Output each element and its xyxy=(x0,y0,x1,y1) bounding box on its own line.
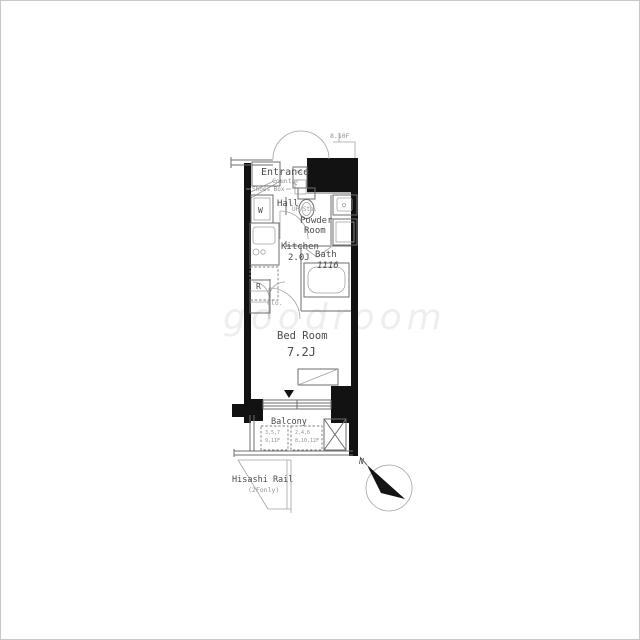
up-storage-label: UP/Sto. xyxy=(292,206,317,213)
kitchen-label: Kitchen xyxy=(281,242,319,252)
hisashi-sub-label: (2Fonly) xyxy=(248,486,279,494)
closet-door-arc xyxy=(269,282,285,298)
compass-arrow-icon xyxy=(367,465,405,499)
compass: N xyxy=(358,457,412,511)
floor-note-label: 8.10F xyxy=(330,132,350,140)
counter-label: Counter xyxy=(272,177,299,185)
window-note-right-1: 2,4,6 xyxy=(295,430,310,436)
entrance-door-arc xyxy=(273,131,329,159)
shoes-box-label: Shoes Box xyxy=(252,186,285,193)
sink-icon xyxy=(253,227,275,244)
compass-north-label: N xyxy=(358,457,364,466)
ps-label: PS xyxy=(295,170,303,177)
powder-room-label-2: Room xyxy=(304,226,326,236)
hisashi-rail-label: Hisashi Rail xyxy=(232,475,293,485)
burner-icon xyxy=(253,249,259,255)
kitchen-size-label: 2.0J xyxy=(288,253,310,263)
balcony-label: Balcony xyxy=(271,417,307,427)
washer-label: W xyxy=(258,206,263,215)
fridge-label: R xyxy=(256,282,261,291)
bath-size-label: 1116 xyxy=(317,261,339,271)
window-note-left-1: 3,5,7 xyxy=(265,430,280,436)
bedroom-label: Bed Room xyxy=(277,330,328,342)
window-note-right-2: 8,10,12F xyxy=(295,438,319,444)
closet-label: Clo. xyxy=(267,299,283,307)
floorplan-canvas: goodroom xyxy=(0,0,640,640)
window-note-left-2: 9,11F xyxy=(265,438,280,444)
bath-label: Bath xyxy=(315,250,337,260)
fridge-space-icon xyxy=(250,267,278,300)
floorplan-drawing: N 8.10F Entrance Counter Shoes Box PS Ha… xyxy=(1,1,640,640)
window-marker-icon xyxy=(284,390,294,398)
powder-room-label-1: Powder xyxy=(300,216,333,226)
bedroom-size-label: 7.2J xyxy=(287,345,316,359)
burner-icon xyxy=(261,250,265,254)
